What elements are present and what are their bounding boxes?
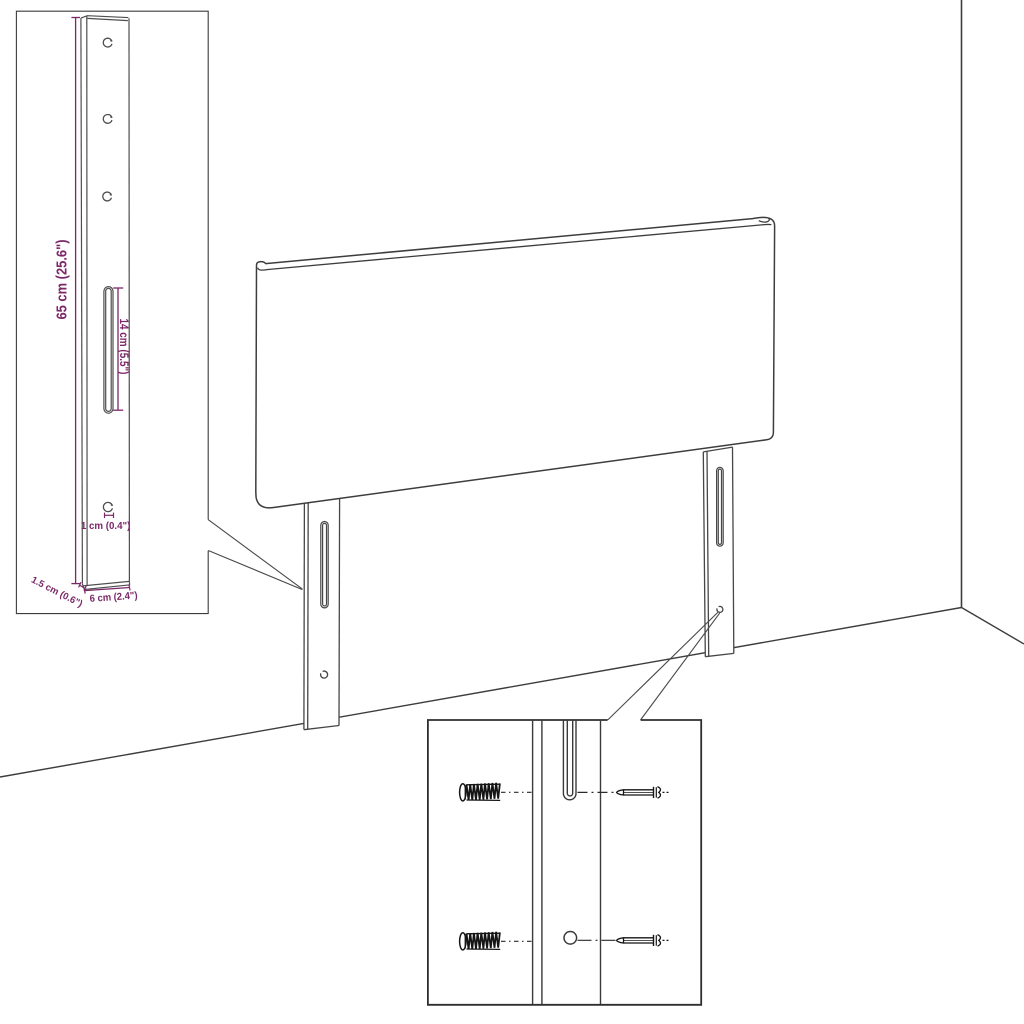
svg-text:1 cm (0.4"): 1 cm (0.4") <box>81 521 131 532</box>
svg-text:14 cm (5.5"): 14 cm (5.5") <box>117 319 131 375</box>
svg-text:65 cm (25.6"): 65 cm (25.6") <box>54 239 71 319</box>
